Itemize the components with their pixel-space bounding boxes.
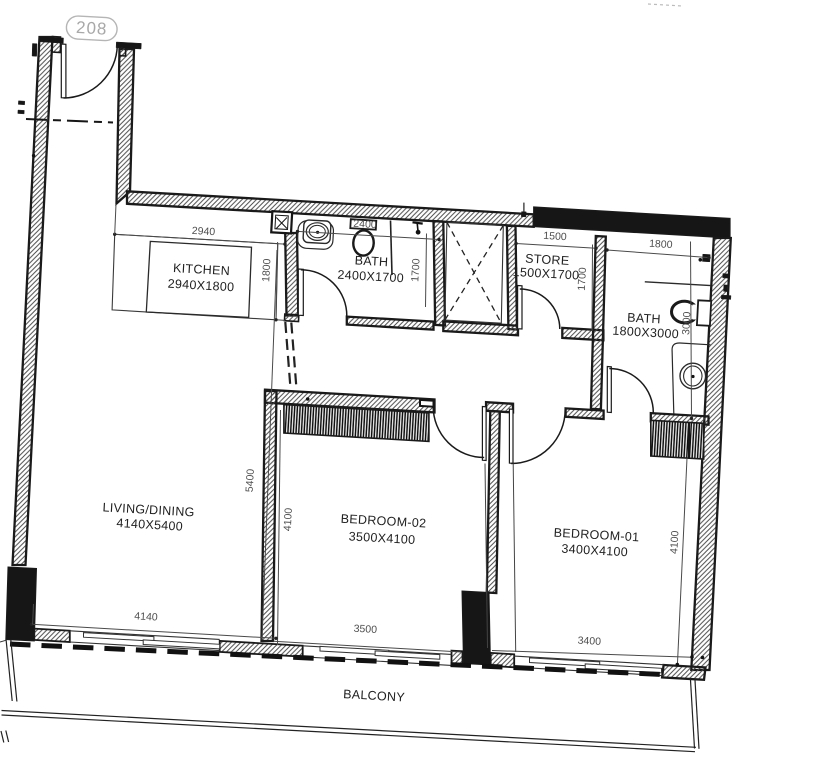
svg-text:5400: 5400 xyxy=(244,468,257,492)
svg-text:4140: 4140 xyxy=(134,610,158,623)
svg-text:4100: 4100 xyxy=(282,507,295,531)
svg-text:3000: 3000 xyxy=(680,311,693,335)
svg-text:208: 208 xyxy=(76,18,108,39)
svg-text:3500: 3500 xyxy=(353,623,377,636)
svg-text:BATH: BATH xyxy=(354,253,388,269)
svg-text:1800: 1800 xyxy=(260,258,273,282)
svg-text:1500: 1500 xyxy=(543,230,567,243)
svg-text:1800: 1800 xyxy=(649,238,673,251)
svg-text:4100: 4100 xyxy=(668,530,681,554)
svg-text:1700: 1700 xyxy=(409,258,422,282)
svg-text:2400: 2400 xyxy=(353,218,377,231)
svg-text:3400: 3400 xyxy=(577,635,601,648)
svg-text:1700: 1700 xyxy=(576,267,589,291)
svg-text:2940: 2940 xyxy=(192,225,216,238)
